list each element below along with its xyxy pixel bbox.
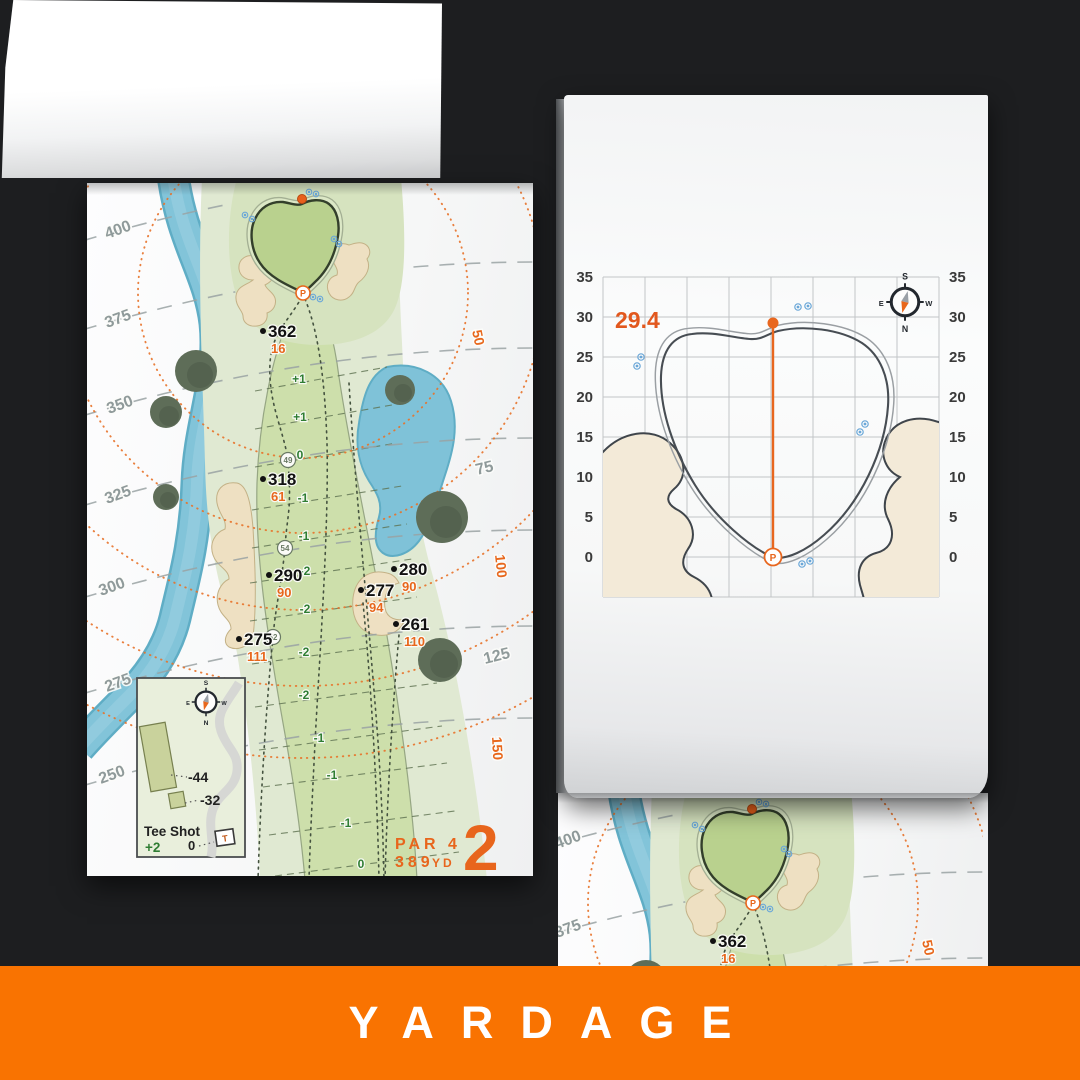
svg-text:35: 35 xyxy=(949,269,966,286)
green-chart-page: 3530 2520 1510 50 3530 2520 1510 50 xyxy=(564,95,988,798)
svg-text:30: 30 xyxy=(576,309,593,326)
depth-measure: P xyxy=(765,318,782,566)
svg-text:0: 0 xyxy=(949,549,957,566)
green-chart: 3530 2520 1510 50 3530 2520 1510 50 xyxy=(564,95,988,798)
svg-text:30: 30 xyxy=(949,309,966,326)
hole-map-peek xyxy=(558,793,988,966)
next-page-hole-map[interactable] xyxy=(558,793,988,966)
hole-map: S N W E xyxy=(87,183,533,876)
svg-text:10: 10 xyxy=(576,469,593,486)
svg-text:5: 5 xyxy=(585,509,593,526)
svg-text:10: 10 xyxy=(949,469,966,486)
svg-text:15: 15 xyxy=(949,429,966,446)
svg-text:20: 20 xyxy=(949,389,966,406)
chart-green-front-marker: P xyxy=(770,553,777,564)
chart-compass-icon xyxy=(879,272,933,335)
svg-text:25: 25 xyxy=(949,349,966,366)
banner-title: YARDAGE xyxy=(322,997,759,1049)
svg-text:20: 20 xyxy=(576,389,593,406)
yardage-book-scene: S N W E xyxy=(0,0,1080,1080)
flipped-page[interactable] xyxy=(0,0,442,178)
hole-map-page: S N W E xyxy=(87,183,533,876)
svg-text:0: 0 xyxy=(585,549,593,566)
y-axis-left: 3530 2520 1510 50 xyxy=(576,269,593,566)
svg-text:25: 25 xyxy=(576,349,593,366)
y-axis-right: 3530 2520 1510 50 xyxy=(949,269,966,566)
svg-text:5: 5 xyxy=(949,509,957,526)
yardage-banner: YARDAGE xyxy=(0,966,1080,1080)
green-depth-value: 29.4 xyxy=(615,307,660,333)
svg-text:35: 35 xyxy=(576,269,593,286)
svg-text:15: 15 xyxy=(576,429,593,446)
